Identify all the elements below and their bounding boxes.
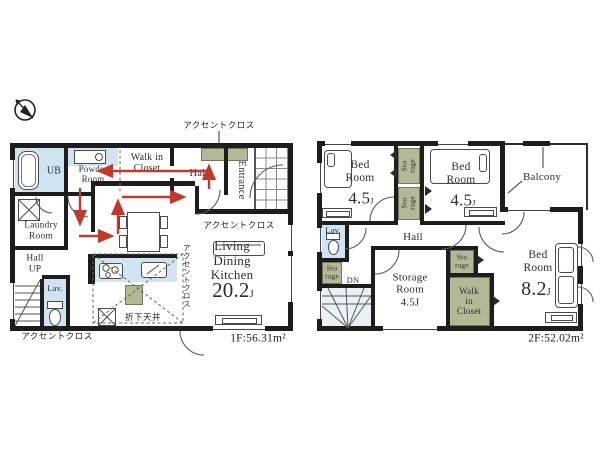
north-compass-icon: [15, 100, 35, 120]
wall: [375, 246, 478, 250]
wall: [195, 209, 293, 214]
chair-icon: [160, 216, 168, 229]
label-bedroom-a-size: 4.5J: [348, 188, 373, 207]
plan-overlay: [0, 0, 600, 450]
window: [438, 141, 468, 146]
size-unit: J: [472, 197, 476, 207]
entrance-step-line: [254, 148, 256, 210]
wall: [371, 246, 375, 331]
dining-table-icon: [127, 212, 160, 252]
ldk-size-value: 20.2: [212, 278, 250, 302]
pillow-icon: [479, 154, 487, 172]
ldk-size-unit: J: [250, 289, 254, 300]
balcony-rail: [586, 143, 588, 210]
wall: [322, 258, 345, 262]
label-storage-a: Sto rage: [401, 159, 418, 173]
wall: [500, 141, 505, 212]
label-entrance: Entrance: [235, 161, 247, 200]
label-bedroom-b: Bed Room: [447, 161, 476, 187]
stairs-2f-floor: [322, 288, 371, 326]
wall: [170, 148, 174, 166]
sink-icon: [141, 262, 167, 278]
window: [578, 284, 583, 304]
size-value: 4.5: [450, 190, 472, 209]
wall: [317, 326, 583, 331]
label-accent-cloth-entrance: アクセントクロス: [203, 221, 275, 231]
wall: [446, 250, 450, 326]
floorplan-canvas: UB Powder Room Walk in Closet Hall Entra…: [0, 0, 600, 450]
wall: [490, 277, 494, 326]
wall: [578, 207, 583, 331]
pillow-icon: [327, 153, 335, 167]
mattress-icon: [558, 247, 574, 273]
label-hall-2f: Hall: [403, 231, 423, 243]
size-unit: J: [547, 287, 551, 298]
wall: [394, 146, 398, 225]
window: [508, 207, 550, 212]
window: [317, 163, 322, 193]
size-value: 4.5: [348, 188, 370, 207]
wall: [224, 148, 228, 195]
label-bedroom-c-size: 8.2J: [521, 278, 551, 300]
chair-icon: [119, 216, 127, 229]
shelf-icon: [322, 208, 352, 218]
size-unit: J: [370, 195, 374, 205]
entrance-tile-floor: [256, 148, 288, 210]
chair-icon: [160, 235, 168, 248]
label-area-2f: 2F:52.02m²: [528, 333, 584, 346]
wall: [64, 148, 68, 193]
washer-icon: [18, 199, 40, 221]
wall: [64, 196, 68, 248]
window: [213, 326, 265, 331]
wall: [420, 146, 424, 225]
label-dropped-ceiling: 折下天井: [125, 313, 161, 323]
label-area-1f: 1F:56.31m²: [230, 333, 286, 346]
wall: [170, 178, 174, 192]
window: [10, 160, 15, 188]
label-hall-up: Hall UP: [26, 253, 43, 274]
label-ub: UB: [47, 165, 61, 176]
label-powder-room: Powder Room: [79, 164, 108, 184]
bathtub-icon: [18, 151, 39, 190]
mattress-icon: [558, 276, 574, 304]
label-walk-in-closet-2f: Walk in Closet: [457, 286, 481, 316]
wall: [523, 141, 550, 146]
label-accent-cloth-top: アクセントクロス: [183, 121, 255, 131]
wall: [195, 186, 199, 214]
window: [288, 256, 293, 302]
wall: [446, 273, 494, 277]
label-ldk: Living Dining Kitchen: [211, 239, 254, 283]
dresser-icon: [545, 312, 577, 323]
label-balcony: Balcony: [523, 171, 561, 183]
stove-icon: [99, 263, 123, 279]
label-lav-2f: Lav.: [325, 226, 341, 236]
label-bedroom-b-size: 4.5J: [450, 190, 475, 209]
label-bedroom-a: Bed Room: [346, 159, 375, 185]
label-storage-b: Sto rage: [401, 196, 418, 210]
kitchen-pantry: [125, 285, 143, 305]
label-ldk-size: 20.2J: [212, 279, 254, 303]
label-storage-c: Sto rage: [325, 265, 339, 282]
window: [325, 141, 351, 146]
label-laundry-room: Laundry Room: [24, 220, 58, 241]
wall: [424, 221, 505, 225]
toilet-tank-icon: [47, 301, 63, 309]
label-accent-cloth-kitchen: アクセントクロス: [182, 244, 190, 308]
label-hall-1f: Hall: [190, 168, 209, 180]
chair-icon: [119, 235, 127, 248]
window: [317, 291, 322, 319]
label-storage-room: Storage Room 4.5J: [392, 272, 427, 309]
label-storage-d: Sto rage: [455, 254, 469, 271]
underfloor-storage-icon: [98, 308, 116, 326]
stairs-1f-icon: [15, 280, 40, 326]
label-bedroom-c: Bed Room: [524, 249, 553, 275]
label-accent-cloth-lav: アクセントクロス: [21, 332, 93, 342]
window: [10, 283, 15, 319]
size-value: 8.2: [521, 278, 547, 300]
window: [288, 225, 293, 251]
window: [317, 228, 322, 252]
label-walk-in-closet-1f: Walk in Closet: [131, 152, 164, 174]
vanity-basin-icon: [95, 153, 103, 161]
wall: [15, 246, 68, 250]
wall: [345, 225, 349, 262]
window: [578, 244, 583, 266]
wall: [15, 192, 95, 196]
tv-board-icon: [215, 315, 262, 325]
wall: [91, 181, 95, 232]
label-lav-1f: Lav.: [47, 284, 63, 294]
label-down: DN: [347, 276, 360, 286]
window: [383, 326, 437, 331]
wall: [40, 279, 44, 326]
wall: [10, 143, 293, 148]
wall: [66, 279, 70, 326]
wall: [93, 254, 177, 258]
wall: [88, 254, 95, 284]
